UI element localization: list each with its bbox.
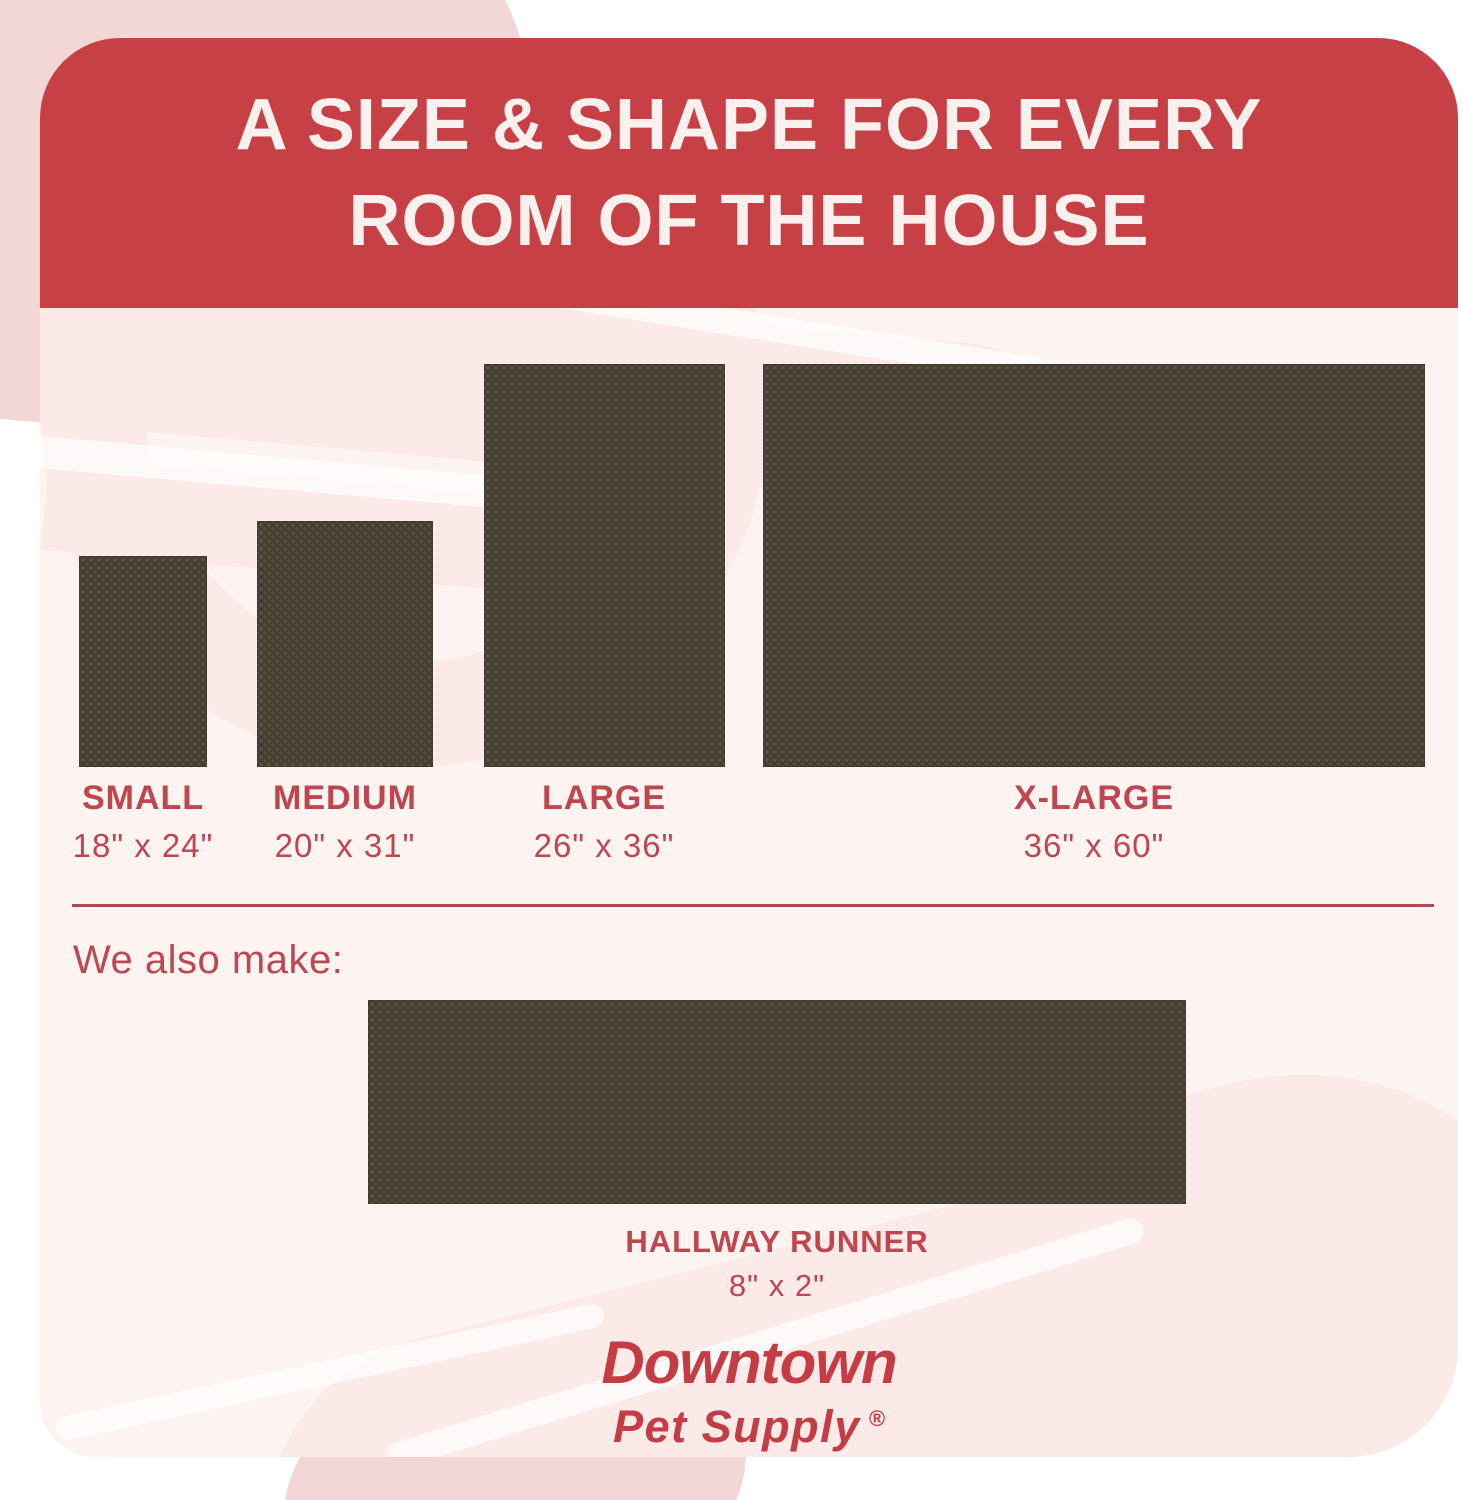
- mat-medium-swatch: [257, 521, 433, 767]
- divider-line: [72, 904, 1434, 907]
- mat-small-swatch: [79, 556, 207, 767]
- mat-large-swatch: [484, 364, 725, 767]
- brand-tagline: Pet Supply®: [40, 1401, 1458, 1453]
- heading-line-1: A SIZE & SHAPE FOR EVERY: [236, 77, 1263, 173]
- runner-name: HALLWAY RUNNER: [377, 1224, 1177, 1260]
- runner-label: HALLWAY RUNNER 8" x 2": [377, 1224, 1177, 1304]
- size-label-medium: MEDIUM 20" x 31": [225, 779, 465, 865]
- brand-logo: Downtown Pet Supply®: [40, 1328, 1458, 1453]
- mat-xlarge-swatch: [763, 364, 1425, 767]
- size-label-xlarge: X-LARGE 36" x 60": [954, 779, 1234, 865]
- size-name: MEDIUM: [225, 779, 465, 818]
- size-dimensions: 26" x 36": [484, 827, 724, 865]
- size-name: LARGE: [484, 779, 724, 818]
- size-dimensions: 36" x 60": [954, 827, 1234, 865]
- mat-hallway-runner-swatch: [368, 1000, 1186, 1204]
- heading-line-2: ROOM OF THE HOUSE: [348, 173, 1149, 269]
- registered-trademark-symbol: ®: [869, 1406, 885, 1431]
- header-banner: A SIZE & SHAPE FOR EVERY ROOM OF THE HOU…: [40, 38, 1458, 308]
- size-name: X-LARGE: [954, 779, 1234, 818]
- brand-tagline-text: Pet Supply: [613, 1401, 861, 1452]
- size-chart-infographic: A SIZE & SHAPE FOR EVERY ROOM OF THE HOU…: [0, 0, 1463, 1500]
- size-label-large: LARGE 26" x 36": [484, 779, 724, 865]
- size-dimensions: 20" x 31": [225, 827, 465, 865]
- we-also-make-text: We also make:: [73, 938, 343, 983]
- runner-dimensions: 8" x 2": [377, 1268, 1177, 1304]
- brand-name: Downtown: [40, 1328, 1458, 1397]
